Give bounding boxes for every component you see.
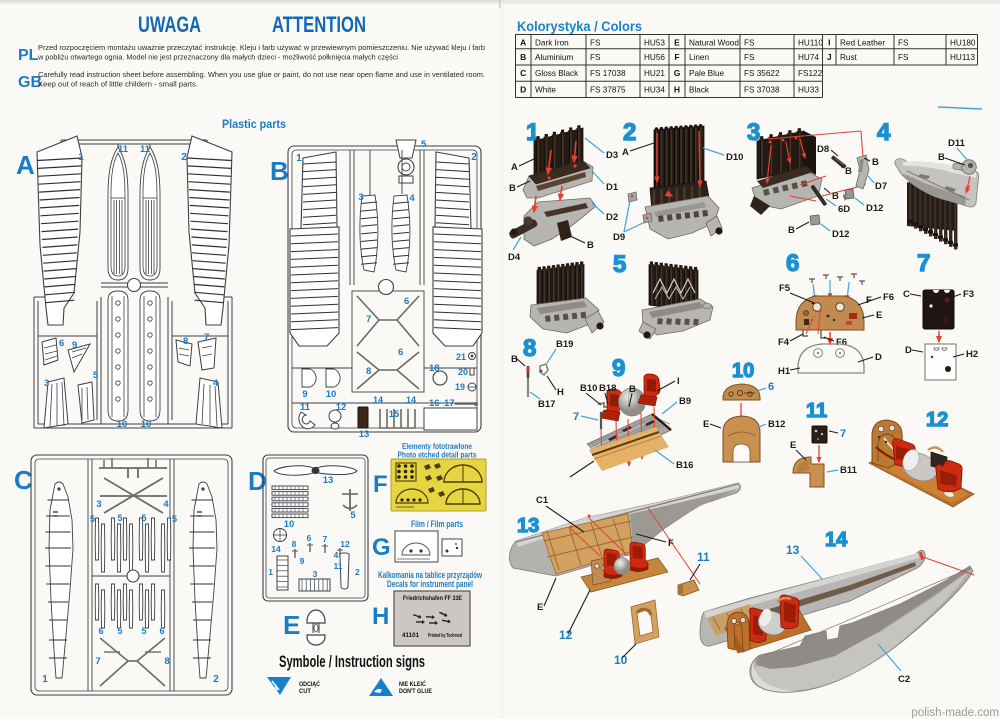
svg-text:D7: D7 [875, 181, 887, 192]
svg-text:D1: D1 [606, 182, 619, 193]
svg-text:2: 2 [471, 152, 477, 163]
svg-text:White: White [535, 85, 556, 94]
svg-text:FS 37038: FS 37038 [744, 85, 780, 94]
svg-text:4: 4 [409, 193, 415, 204]
svg-text:A: A [16, 150, 35, 180]
svg-text:HU113: HU113 [950, 53, 975, 62]
svg-text:9: 9 [72, 340, 77, 351]
svg-text:D: D [905, 345, 912, 356]
svg-text:G: G [372, 534, 391, 561]
svg-text:NIE KLEIĆ: NIE KLEIĆ [399, 679, 426, 688]
svg-text:11: 11 [140, 144, 151, 155]
svg-text:E: E [674, 38, 680, 48]
svg-text:12: 12 [926, 409, 948, 431]
svg-text:B: B [587, 240, 594, 251]
svg-text:H2: H2 [966, 349, 978, 360]
svg-text:7: 7 [323, 534, 328, 544]
svg-text:18: 18 [429, 363, 440, 374]
svg-text:ATTENTION: ATTENTION [272, 12, 366, 37]
svg-text:2: 2 [623, 119, 636, 146]
svg-text:D: D [520, 84, 526, 94]
svg-text:6: 6 [398, 347, 403, 358]
svg-text:A: A [520, 38, 526, 48]
svg-text:DON'T GLUE: DON'T GLUE [399, 688, 433, 695]
svg-text:HU33: HU33 [798, 85, 819, 94]
svg-text:Dark Iron: Dark Iron [535, 39, 569, 48]
svg-text:1: 1 [42, 674, 48, 685]
svg-text:Keep out of reach of little ch: Keep out of reach of little childern - s… [38, 80, 198, 89]
svg-text:Natural Wood: Natural Wood [689, 39, 739, 48]
svg-text:21: 21 [456, 352, 466, 362]
svg-text:13: 13 [323, 475, 334, 486]
svg-text:D9: D9 [613, 232, 625, 243]
svg-text:D: D [875, 352, 882, 363]
svg-text:14: 14 [373, 395, 383, 405]
svg-text:D3: D3 [606, 150, 618, 161]
svg-text:B: B [629, 384, 636, 395]
svg-text:5: 5 [93, 370, 99, 381]
svg-text:6D: 6D [838, 204, 850, 215]
svg-text:3: 3 [313, 569, 318, 579]
svg-text:1: 1 [268, 567, 273, 577]
svg-text:Aluminium: Aluminium [535, 53, 573, 62]
svg-text:6: 6 [404, 296, 409, 307]
svg-text:A: A [511, 162, 518, 173]
svg-text:H: H [372, 603, 389, 630]
svg-text:PL: PL [18, 47, 39, 64]
svg-text:D12: D12 [832, 229, 849, 240]
svg-text:6: 6 [59, 338, 64, 349]
svg-text:HU110: HU110 [798, 39, 823, 48]
svg-text:9: 9 [300, 556, 305, 566]
svg-text:13: 13 [517, 515, 539, 537]
svg-text:Przed rozpoczęciem montażu uwa: Przed rozpoczęciem montażu uważnie przec… [38, 43, 485, 52]
svg-text:5: 5 [141, 513, 146, 523]
svg-text:5: 5 [172, 514, 177, 524]
svg-text:D11: D11 [948, 138, 966, 149]
svg-text:F6: F6 [836, 337, 847, 348]
svg-text:C: C [520, 68, 526, 78]
svg-text:HU21: HU21 [644, 69, 665, 78]
svg-text:8: 8 [164, 656, 169, 667]
svg-text:10: 10 [732, 360, 754, 382]
svg-text:D12: D12 [866, 203, 883, 214]
svg-text:1: 1 [78, 152, 84, 163]
svg-text:8: 8 [366, 366, 371, 377]
svg-text:6: 6 [768, 381, 774, 393]
svg-text:Kolorystyka / Colors: Kolorystyka / Colors [517, 18, 642, 34]
svg-text:B11: B11 [840, 465, 858, 476]
svg-text:CUT: CUT [299, 688, 311, 695]
svg-text:6: 6 [786, 250, 799, 277]
svg-text:B10: B10 [580, 383, 597, 394]
svg-text:F: F [668, 538, 674, 549]
svg-text:Red Leather: Red Leather [840, 39, 885, 48]
svg-text:12: 12 [336, 402, 347, 413]
svg-text:8: 8 [292, 539, 297, 549]
svg-text:H: H [674, 84, 680, 94]
svg-text:Pale Blue: Pale Blue [689, 69, 724, 78]
svg-text:11: 11 [334, 561, 343, 571]
svg-text:A: A [622, 147, 629, 158]
svg-text:Linen: Linen [689, 53, 709, 62]
svg-text:2: 2 [355, 567, 360, 577]
svg-text:19: 19 [455, 382, 465, 392]
svg-text:13: 13 [359, 429, 370, 440]
svg-text:13: 13 [786, 543, 800, 557]
svg-text:B: B [938, 152, 945, 163]
svg-text:E: E [876, 310, 882, 321]
svg-text:4: 4 [334, 550, 339, 560]
svg-text:10: 10 [284, 519, 295, 530]
svg-text:14: 14 [406, 395, 416, 405]
svg-text:B: B [509, 183, 516, 194]
svg-text:Rust: Rust [840, 53, 858, 62]
svg-text:HU53: HU53 [644, 39, 665, 48]
svg-text:B: B [520, 52, 526, 62]
svg-text:10: 10 [117, 419, 128, 430]
svg-text:5: 5 [350, 510, 356, 521]
svg-text:B: B [832, 191, 839, 202]
svg-text:5: 5 [90, 514, 95, 524]
svg-text:FS: FS [744, 39, 755, 48]
svg-text:E: E [703, 419, 709, 430]
svg-text:12: 12 [340, 539, 350, 549]
svg-text:11: 11 [300, 402, 311, 413]
svg-text:H1: H1 [778, 366, 791, 377]
svg-text:C2: C2 [898, 674, 910, 685]
svg-text:10: 10 [326, 389, 337, 400]
svg-text:HU74: HU74 [798, 53, 819, 62]
svg-text:FS122: FS122 [798, 69, 823, 78]
svg-text:16: 16 [429, 398, 440, 409]
svg-text:Carefully read instruction she: Carefully read instruction sheet before … [38, 70, 485, 79]
svg-text:11: 11 [697, 550, 710, 564]
svg-text:B: B [270, 156, 289, 186]
svg-text:Decals for instrument panel: Decals for instrument panel [387, 579, 473, 589]
svg-text:11: 11 [118, 144, 129, 155]
svg-text:3: 3 [358, 192, 363, 203]
svg-text:8: 8 [183, 336, 188, 347]
svg-text:FS: FS [898, 53, 909, 62]
svg-text:C: C [903, 289, 910, 300]
svg-text:15: 15 [389, 409, 400, 420]
svg-text:20: 20 [458, 367, 468, 377]
svg-text:14: 14 [271, 544, 281, 554]
svg-text:5: 5 [141, 626, 146, 636]
svg-text:B12: B12 [768, 419, 785, 430]
svg-text:Friedrichshafen FF 33E: Friedrichshafen FF 33E [403, 595, 462, 602]
svg-text:4: 4 [163, 499, 169, 510]
svg-text:FS 37875: FS 37875 [590, 85, 626, 94]
svg-text:1: 1 [296, 153, 302, 164]
svg-text:I: I [828, 38, 830, 48]
svg-text:FS 17038: FS 17038 [590, 69, 626, 78]
svg-text:F6: F6 [883, 292, 894, 303]
svg-text:Black: Black [689, 85, 710, 94]
svg-text:F5: F5 [779, 283, 791, 294]
svg-text:5: 5 [117, 513, 122, 523]
svg-text:7: 7 [366, 314, 371, 325]
svg-text:F: F [674, 52, 679, 62]
svg-text:E: E [537, 602, 543, 613]
svg-text:3: 3 [44, 378, 49, 389]
svg-text:HU34: HU34 [644, 85, 665, 94]
svg-text:E: E [790, 440, 796, 451]
svg-text:HU56: HU56 [644, 53, 665, 62]
svg-text:D8: D8 [817, 144, 829, 155]
svg-text:FS: FS [744, 53, 755, 62]
svg-text:Symbole / Instruction signs: Symbole / Instruction signs [279, 653, 425, 671]
svg-text:Film / Film parts: Film / Film parts [411, 519, 463, 529]
svg-text:7: 7 [917, 250, 930, 277]
svg-text:J: J [827, 52, 832, 62]
svg-text:5: 5 [117, 626, 122, 636]
svg-text:6: 6 [307, 533, 312, 543]
svg-text:D2: D2 [606, 212, 618, 223]
svg-text:B: B [845, 166, 852, 177]
svg-text:F4: F4 [778, 337, 790, 348]
svg-text:Gloss Black: Gloss Black [535, 69, 579, 78]
svg-text:B18: B18 [599, 383, 616, 394]
svg-text:Photo etched detail parts: Photo etched detail parts [398, 450, 477, 460]
svg-text:3: 3 [96, 499, 101, 510]
svg-text:6: 6 [159, 626, 164, 636]
svg-text:7: 7 [204, 332, 209, 343]
svg-text:7: 7 [95, 656, 100, 667]
svg-text:C1: C1 [536, 495, 549, 506]
svg-text:10: 10 [141, 419, 152, 430]
svg-text:G: G [674, 68, 681, 78]
svg-text:5: 5 [421, 139, 427, 150]
svg-text:ODCIĄĆ: ODCIĄĆ [299, 679, 320, 688]
svg-text:D: D [248, 466, 267, 496]
svg-text:7: 7 [840, 428, 846, 440]
svg-text:9: 9 [302, 389, 307, 400]
svg-text:Printed by Techmod: Printed by Techmod [428, 633, 462, 639]
svg-text:B16: B16 [676, 460, 693, 471]
svg-text:4: 4 [213, 378, 219, 389]
svg-text:D4: D4 [508, 252, 521, 263]
svg-text:I: I [677, 376, 680, 387]
svg-text:FS: FS [590, 39, 601, 48]
svg-text:7: 7 [573, 411, 579, 423]
svg-text:4: 4 [877, 119, 891, 146]
svg-text:B17: B17 [538, 399, 555, 410]
svg-text:2: 2 [213, 674, 219, 685]
svg-text:B9: B9 [679, 396, 691, 407]
svg-text:H: H [557, 387, 564, 398]
svg-text:B19: B19 [556, 339, 573, 350]
svg-text:w pobliżu otwartego ognia. Mod: w pobliżu otwartego ognia. Model nie jes… [37, 53, 398, 62]
svg-text:FS 35622: FS 35622 [744, 69, 780, 78]
svg-text:8: 8 [523, 335, 536, 362]
svg-text:E: E [283, 610, 300, 640]
svg-text:FS: FS [590, 53, 601, 62]
svg-text:9: 9 [612, 355, 625, 382]
svg-text:polish-made.com: polish-made.com [911, 707, 999, 719]
svg-text:6: 6 [98, 626, 103, 636]
svg-text:11: 11 [806, 400, 827, 422]
svg-text:D10: D10 [726, 152, 743, 163]
svg-text:41101: 41101 [402, 632, 420, 639]
svg-text:Plastic parts: Plastic parts [222, 117, 286, 131]
svg-text:2: 2 [181, 152, 187, 163]
svg-text:B: B [872, 157, 879, 168]
svg-text:F3: F3 [963, 289, 974, 300]
svg-text:HU180: HU180 [950, 39, 976, 48]
svg-text:17: 17 [444, 398, 455, 409]
svg-text:5: 5 [613, 251, 626, 278]
svg-text:C: C [14, 465, 33, 495]
svg-text:12: 12 [559, 628, 573, 642]
svg-text:F: F [373, 471, 388, 498]
svg-text:14: 14 [825, 529, 848, 551]
svg-text:F: F [866, 295, 872, 306]
svg-text:FS: FS [898, 39, 909, 48]
svg-text:B: B [788, 225, 795, 236]
svg-text:UWAGA: UWAGA [138, 12, 201, 37]
